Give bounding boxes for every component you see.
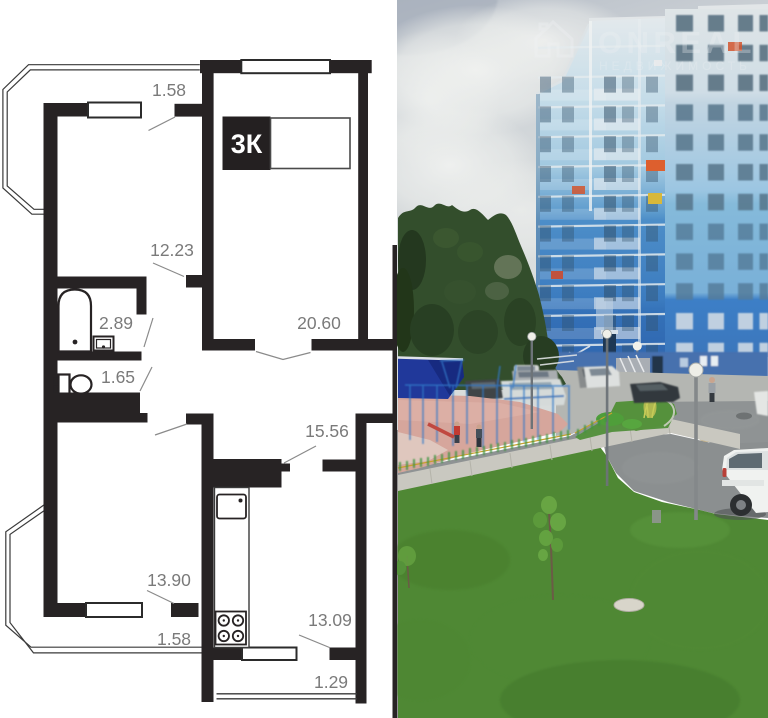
svg-text:20.60: 20.60 (297, 313, 341, 333)
svg-text:1.58: 1.58 (157, 629, 191, 649)
svg-text:НЕДВИЖИМОСТЬ: НЕДВИЖИМОСТЬ (599, 59, 751, 73)
svg-text:13.90: 13.90 (147, 570, 191, 590)
svg-text:2.89: 2.89 (99, 313, 133, 333)
svg-text:ONREAL: ONREAL (598, 25, 756, 60)
svg-text:1.65: 1.65 (101, 367, 135, 387)
svg-text:1.29: 1.29 (314, 672, 348, 692)
svg-text:15.56: 15.56 (305, 421, 349, 441)
svg-text:13.09: 13.09 (308, 610, 352, 630)
svg-text:12.23: 12.23 (150, 240, 194, 260)
svg-text:3К: 3К (231, 129, 263, 159)
svg-text:1.58: 1.58 (152, 80, 186, 100)
